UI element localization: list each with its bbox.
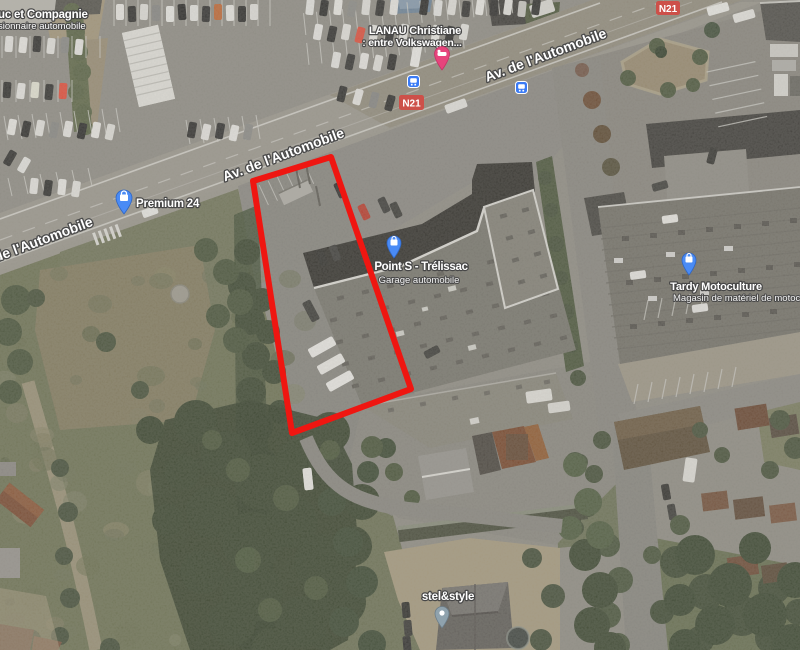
svg-text:Premium 24: Premium 24 bbox=[136, 198, 200, 210]
svg-text:stel&style: stel&style bbox=[422, 591, 474, 603]
svg-text:sionnaire automobile: sionnaire automobile bbox=[0, 21, 86, 32]
svg-text:N21: N21 bbox=[659, 4, 678, 15]
svg-text:uc et Compagnie: uc et Compagnie bbox=[0, 9, 88, 21]
svg-text:Garage automobile: Garage automobile bbox=[379, 275, 460, 286]
svg-text:LANAU Christiane: LANAU Christiane bbox=[369, 25, 461, 37]
svg-text:Tardy Motoculture: Tardy Motoculture bbox=[670, 281, 762, 293]
svg-text:: entre Volkswagen...: : entre Volkswagen... bbox=[362, 37, 462, 49]
svg-text:Magasin de matériel de motocul: Magasin de matériel de motocult... bbox=[673, 293, 800, 304]
svg-text:N21: N21 bbox=[402, 99, 421, 110]
svg-text:Point S - Trélissac: Point S - Trélissac bbox=[374, 261, 468, 273]
